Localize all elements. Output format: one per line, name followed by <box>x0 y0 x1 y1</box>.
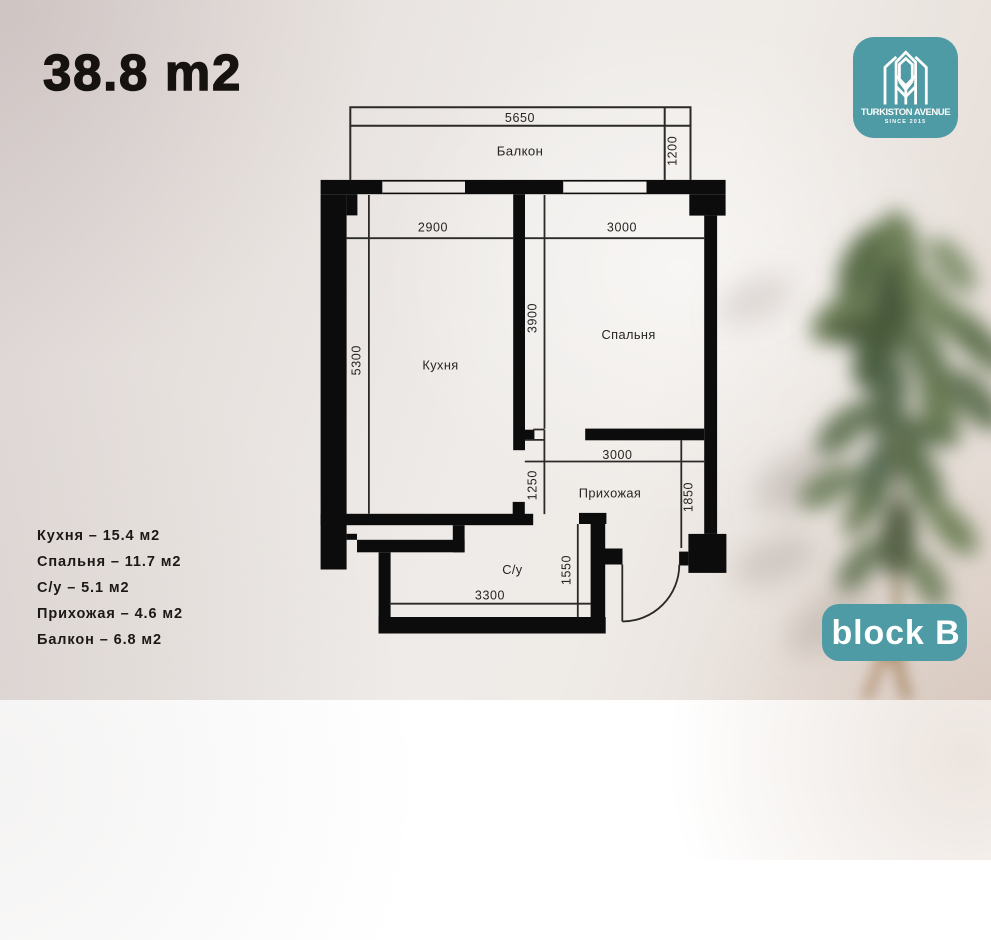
svg-text:С/у: С/у <box>502 562 523 577</box>
svg-text:3000: 3000 <box>607 221 637 235</box>
svg-text:2900: 2900 <box>418 221 448 235</box>
svg-text:Спальня: Спальня <box>601 327 655 342</box>
svg-text:Прихожая: Прихожая <box>579 486 642 501</box>
svg-text:1550: 1550 <box>560 555 574 585</box>
svg-text:3900: 3900 <box>526 303 540 333</box>
svg-text:3300: 3300 <box>475 589 505 603</box>
svg-text:5300: 5300 <box>350 345 364 375</box>
svg-text:Балкон: Балкон <box>497 144 544 159</box>
svg-text:1850: 1850 <box>681 482 695 512</box>
svg-text:Кухня: Кухня <box>422 358 458 373</box>
svg-text:1200: 1200 <box>665 136 679 166</box>
svg-text:3000: 3000 <box>602 448 632 462</box>
svg-text:1250: 1250 <box>525 470 539 500</box>
svg-text:5650: 5650 <box>505 111 535 125</box>
